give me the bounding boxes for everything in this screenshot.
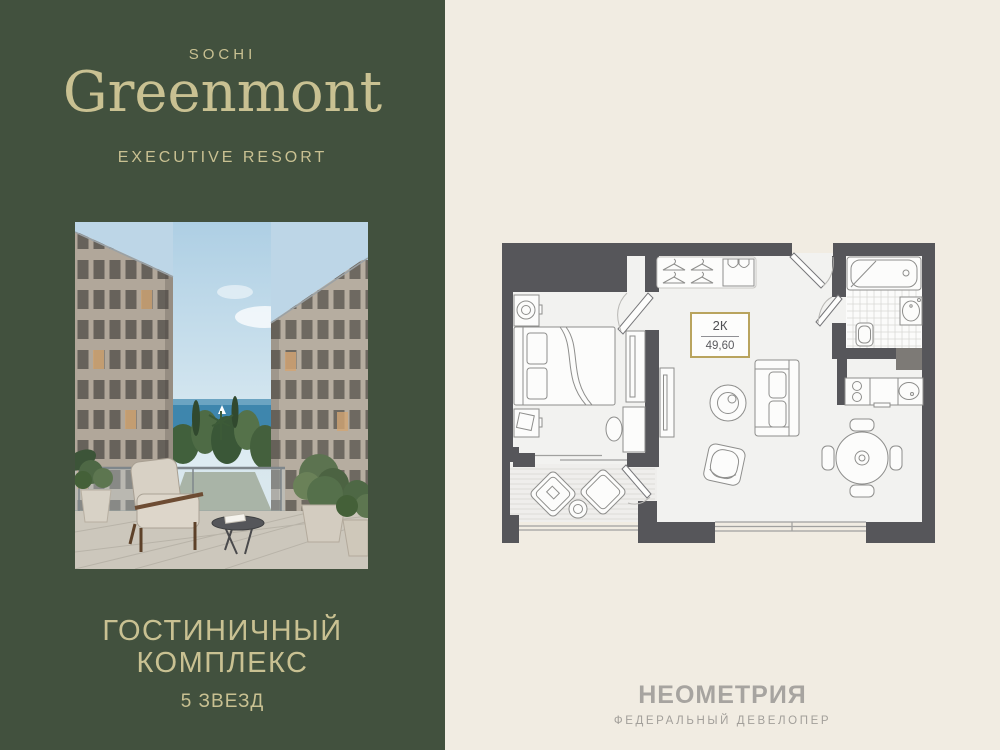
kitchen-counter bbox=[845, 378, 923, 407]
floorplan-drawing bbox=[502, 243, 935, 543]
heading-line1: ГОСТИНИЧНЫЙ bbox=[102, 615, 342, 647]
nightstand-lamp bbox=[514, 295, 542, 326]
courtyard-photo bbox=[75, 222, 368, 569]
developer-tagline: ФЕДЕРАЛЬНЫЙ ДЕВЕЛОПЕР bbox=[445, 715, 1000, 727]
oven bbox=[874, 403, 890, 407]
kitchen-sink bbox=[899, 383, 919, 400]
rooms-label: 2К bbox=[713, 318, 728, 333]
sofa bbox=[755, 360, 799, 436]
complex-heading: ГОСТИНИЧНЫЙ КОМПЛЕКС bbox=[0, 615, 445, 680]
stove-burner bbox=[853, 382, 862, 391]
tv-console bbox=[660, 368, 674, 437]
washbasin bbox=[900, 297, 922, 325]
balcony-window bbox=[519, 526, 638, 530]
armchair bbox=[702, 443, 746, 487]
balcony-table bbox=[569, 500, 587, 518]
dining-table bbox=[836, 432, 888, 484]
living-room-window bbox=[715, 522, 866, 531]
floorplan-diagram: 2К 49,60 bbox=[502, 243, 935, 543]
stars-label: 5 ЗВЕЗД bbox=[0, 691, 445, 713]
coat-rack bbox=[657, 257, 756, 288]
developer-logo: НЕОМЕТРИЯ ФЕДЕРАЛЬНЫЙ ДЕВЕЛОПЕР bbox=[445, 681, 1000, 727]
plan-panel: 2К 49,60 НЕОМЕТРИЯ ФЕДЕРАЛЬНЫЙ ДЕВЕЛОПЕР bbox=[445, 0, 1000, 750]
stove-burner bbox=[853, 393, 862, 402]
bed bbox=[514, 327, 615, 405]
badge-divider bbox=[701, 336, 739, 337]
courtyard-photo-render bbox=[75, 222, 368, 569]
poster: SOCHI Greenmont EXECUTIVE RESORT bbox=[0, 0, 1000, 750]
shoe-cabinet bbox=[723, 259, 754, 286]
desk-chair bbox=[606, 417, 622, 441]
nightstand-low bbox=[514, 409, 542, 437]
duct-shaft bbox=[896, 348, 922, 370]
bathtub bbox=[847, 257, 921, 290]
developer-name: НЕОМЕТРИЯ bbox=[445, 681, 1000, 710]
brand-logo: Greenmont bbox=[0, 60, 445, 125]
coffee-table bbox=[710, 385, 746, 421]
brand-tagline: EXECUTIVE RESORT bbox=[0, 149, 445, 167]
brand-panel: SOCHI Greenmont EXECUTIVE RESORT bbox=[0, 0, 445, 750]
area-label: 49,60 bbox=[706, 340, 735, 352]
heading-line2: КОМПЛЕКС bbox=[136, 647, 308, 679]
toilet bbox=[856, 323, 873, 346]
wardrobe bbox=[626, 331, 645, 402]
apartment-badge: 2К 49,60 bbox=[690, 312, 750, 358]
